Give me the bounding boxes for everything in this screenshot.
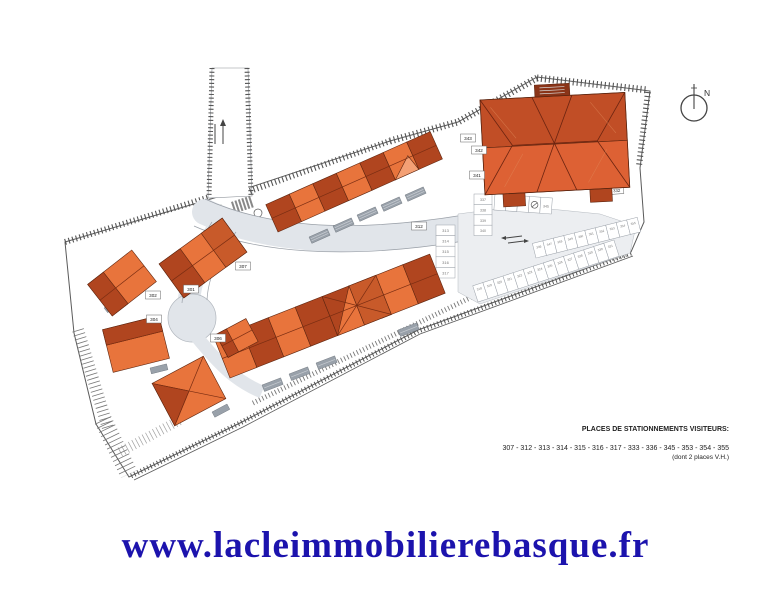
svg-text:339: 339 (480, 219, 486, 223)
legend-numbers: 307 - 312 - 313 - 314 - 315 - 316 - 317 … (503, 445, 730, 452)
svg-text:302: 302 (149, 293, 157, 298)
svg-text:317: 317 (442, 270, 449, 275)
parking-col-visitors: 313 314 315 316 317 (436, 225, 455, 278)
svg-text:337: 337 (480, 198, 486, 202)
svg-text:341: 341 (473, 173, 481, 178)
svg-text:304: 304 (150, 317, 158, 322)
main-residence-building (479, 80, 630, 207)
svg-text:306: 306 (214, 336, 222, 341)
svg-text:343: 343 (464, 136, 472, 141)
svg-text:340: 340 (480, 229, 486, 233)
cul-de-sac (168, 294, 216, 342)
svg-text:342: 342 (475, 148, 483, 153)
svg-text:315: 315 (442, 249, 449, 254)
legend-note: (dont 2 places V.H.) (672, 454, 729, 461)
compass-label: N (704, 88, 710, 98)
visitor-parking-legend: PLACES DE STATIONNEMENTS VISITEURS: 307 … (503, 426, 730, 461)
north-arrow-icon: N (681, 84, 710, 121)
svg-text:301: 301 (187, 287, 195, 292)
svg-text:312: 312 (415, 224, 423, 229)
website-url[interactable]: www.lacleimmobilierebasque.fr (0, 524, 771, 567)
svg-text:313: 313 (442, 228, 449, 233)
svg-text:316: 316 (442, 260, 449, 265)
svg-text:314: 314 (442, 239, 449, 244)
parking-col-west: 337 338 339 340 (474, 194, 492, 236)
svg-text:345: 345 (543, 204, 549, 208)
site-plan-page: 318319 320321 322323 324325 326327 32832… (0, 0, 771, 600)
svg-text:307: 307 (239, 264, 247, 269)
svg-text:338: 338 (480, 208, 486, 212)
site-plan-drawing: 318319 320321 322323 324325 326327 32832… (0, 0, 771, 600)
legend-title: PLACES DE STATIONNEMENTS VISITEURS: (582, 426, 729, 433)
